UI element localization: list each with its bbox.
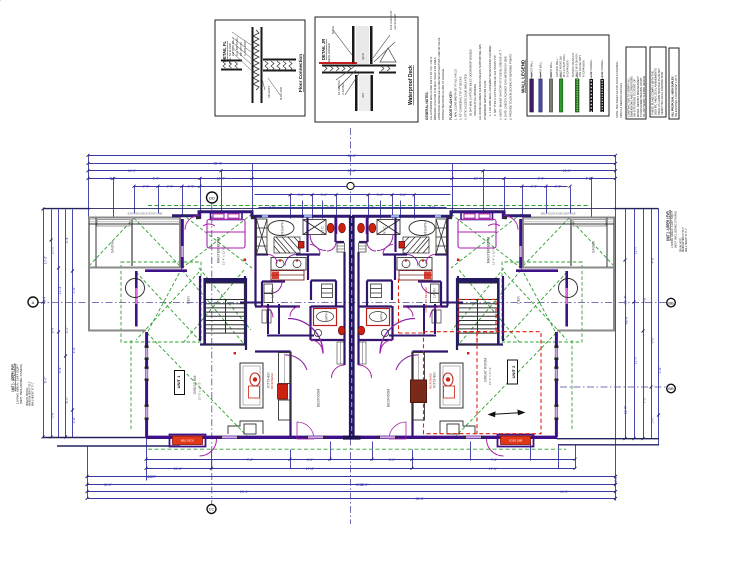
svg-text:MICROWAVE: MICROWAVE: [270, 373, 274, 389]
svg-text:OTHERWISE NOTED ON PLAN:: OTHERWISE NOTED ON PLAN:: [483, 80, 487, 120]
svg-text:SAUNA: SAUNA: [592, 240, 596, 253]
svg-text:2. 5/8" TYPE X GYP EA SIDE OF: 2. 5/8" TYPE X GYP EA SIDE OF 2x4 STUDS …: [493, 55, 497, 116]
svg-text:11'-6": 11'-6": [624, 405, 628, 414]
svg-text:SAUNA: SAUNA: [111, 240, 115, 253]
svg-text:6'-6": 6'-6": [153, 177, 161, 181]
svg-text:5'-0": 5'-0": [651, 416, 655, 424]
svg-text:4'-0": 4'-0": [368, 206, 376, 210]
svg-text:2'-6": 2'-6": [143, 184, 151, 188]
svg-text:48'-4": 48'-4": [625, 315, 629, 324]
svg-text:GREAT RM: GREAT RM: [193, 376, 197, 395]
svg-text:1 HR FIREWALL: 1 HR FIREWALL: [590, 58, 593, 77]
svg-text:88'-8": 88'-8": [348, 154, 357, 158]
svg-text:5/4 DECKING: 5/4 DECKING: [338, 80, 341, 95]
svg-text:MASTER BDRM: MASTER BDRM: [487, 237, 491, 264]
svg-text:LAG SCREWS: LAG SCREWS: [394, 14, 397, 30]
svg-text:2'-8": 2'-8": [658, 366, 662, 374]
svg-text:5'-4": 5'-4": [65, 236, 69, 244]
svg-text:FLOOR JOIST: FLOOR JOIST: [244, 40, 247, 56]
svg-text:3'-6": 3'-6": [298, 193, 306, 197]
svg-text:FLOOR PLAN KEY:: FLOOR PLAN KEY:: [449, 91, 453, 120]
svg-text:CC: CC: [209, 507, 215, 512]
svg-text:2. 42" GUARDRAIL TYP. AT DECKS: 2. 42" GUARDRAIL TYP. AT DECKS: [459, 76, 463, 120]
svg-text:3'-6": 3'-6": [400, 193, 408, 197]
svg-text:DECK LEDGER: DECK LEDGER: [327, 43, 331, 62]
svg-text:PROTECTED DOOR CLOSE AT GARAGE: PROTECTED DOOR CLOSE AT GARAGE: [441, 69, 445, 120]
svg-text:WINDOW HDR AT 80.5": WINDOW HDR AT 80.5": [29, 381, 32, 406]
svg-text:ALL DOOR HEADERS 4x8 DF#2 UNLE: ALL DOOR HEADERS 4x8 DF#2 UNLESS SUPPORT…: [478, 44, 482, 120]
svg-text:4'-6": 4'-6": [651, 256, 655, 264]
svg-text:1. MIN. CLEAR WIDTH 36" AT ALL: 1. MIN. CLEAR WIDTH 36" AT ALL HALLS: [454, 69, 458, 120]
svg-text:WINDOW HDR AT 80.5": WINDOW HDR AT 80.5": [682, 227, 685, 252]
svg-text:11'-0": 11'-0": [634, 355, 638, 364]
svg-text:5'-0": 5'-0": [307, 458, 315, 462]
svg-text:GREAT ROOM: GREAT ROOM: [484, 358, 488, 382]
svg-text:8'-6": 8'-6": [538, 177, 546, 181]
svg-text:88'-8": 88'-8": [416, 497, 425, 501]
svg-text:SUBFLOOR: SUBFLOOR: [280, 87, 283, 100]
svg-text:5'-0": 5'-0": [389, 458, 397, 462]
svg-text:MASTER BDRM: MASTER BDRM: [217, 237, 221, 264]
svg-text:BB: BB: [668, 300, 674, 305]
svg-text:5'-6": 5'-6": [377, 193, 385, 197]
svg-text:LAUN: LAUN: [271, 288, 275, 298]
svg-text:13'-4" x 12'-8": 13'-4" x 12'-8": [222, 247, 226, 265]
svg-text:30 DAY MIN. CAPTURE INLET, DOO: 30 DAY MIN. CAPTURE INLET, DOOR DROP DOU…: [469, 49, 473, 116]
svg-text:21'-4": 21'-4": [624, 295, 628, 304]
svg-text:KITCHEN: KITCHEN: [433, 372, 437, 388]
svg-text:MICROWAVE: MICROWAVE: [429, 373, 433, 389]
svg-text:2x4 INT WALL: 2x4 INT WALL: [540, 61, 543, 77]
svg-text:10'-0": 10'-0": [560, 490, 569, 494]
svg-text:ALL EXTERIOR WALLS ARE 2x6 AT: ALL EXTERIOR WALLS ARE 2x6 AT 16" O.C. U…: [429, 56, 433, 120]
svg-text:BB: BB: [668, 386, 674, 391]
svg-text:16'-0" x 17'-2": 16'-0" x 17'-2": [488, 367, 492, 385]
svg-text:FLASHING: FLASHING: [342, 83, 345, 95]
svg-text:2x6 STUD WALL: 2x6 STUD WALL: [232, 37, 235, 56]
svg-text:SPACER AT EA OPENING: SPACER AT EA OPENING: [473, 84, 477, 116]
svg-text:9'-0": 9'-0": [44, 376, 48, 384]
svg-text:14'-2": 14'-2": [614, 475, 618, 484]
svg-text:ALL PROPOSAL: NEW DUPLEX: ALL PROPOSAL: NEW DUPLEX: [671, 76, 675, 117]
svg-text:2'-6": 2'-6": [531, 184, 539, 188]
svg-text:2x6 EXT WALL: 2x6 EXT WALL: [531, 60, 534, 77]
svg-text:12'-2": 12'-2": [148, 475, 157, 479]
svg-text:2x6 INT WALL: 2x6 INT WALL: [550, 61, 553, 77]
svg-text:R-21 BATT INSUL: R-21 BATT INSUL: [236, 36, 239, 56]
svg-text:2'-6": 2'-6": [188, 184, 196, 188]
svg-text:16'-0": 16'-0": [563, 169, 572, 173]
svg-text:DETAIL JR: DETAIL JR: [321, 39, 326, 60]
svg-text:VERIFY W/ LOCAL JURISDICTION: VERIFY W/ LOCAL JURISDICTION: [660, 72, 664, 115]
svg-text:UNLESS NOTED:: UNLESS NOTED:: [27, 387, 29, 406]
svg-text:WALL HEIGHT AT 8'-1": WALL HEIGHT AT 8'-1": [31, 382, 34, 406]
svg-text:SIDING: SIDING: [332, 26, 335, 34]
svg-text:2 HR FIREWALL: 2 HR FIREWALL: [601, 58, 604, 77]
svg-text:WALL HEIGHT AT 8'-1": WALL HEIGHT AT 8'-1": [685, 228, 688, 252]
svg-text:IN EXPANSION: IN EXPANSION: [567, 60, 570, 77]
svg-text:6'-0": 6'-0": [651, 336, 655, 344]
svg-text:4'-0": 4'-0": [327, 206, 335, 210]
svg-text:ON EXISTING FOOTPRINT LOT 4: ON EXISTING FOOTPRINT LOT 4: [674, 75, 678, 117]
svg-text:5'-6": 5'-6": [51, 411, 55, 419]
svg-text:3'-0": 3'-0": [65, 326, 69, 334]
svg-text:BEDROOM: BEDROOM: [317, 389, 321, 408]
svg-text:7'-6": 7'-6": [491, 458, 499, 462]
svg-text:3. ATTIC ACCESS 22x30 INSULATE: 3. ATTIC ACCESS 22x30 INSULATED: [464, 74, 468, 120]
svg-text:17'-6": 17'-6": [489, 467, 498, 471]
svg-text:W.I.C.: W.I.C.: [383, 225, 387, 235]
svg-text:(NOT INCLUDING STAIRS): (NOT INCLUDING STAIRS): [674, 211, 678, 248]
svg-text:12'-0": 12'-0": [217, 177, 226, 181]
svg-text:EXISTING DECK ROOF LINE: EXISTING DECK ROOF LINE: [128, 212, 163, 216]
svg-text:DEN: DEN: [187, 296, 191, 304]
svg-text:DD: DD: [209, 195, 215, 200]
svg-text:34'-0": 34'-0": [128, 169, 137, 173]
svg-text:36'-2": 36'-2": [360, 483, 369, 487]
svg-text:WINDOW U-FACTOR 0.30 MAX, SHGC: WINDOW U-FACTOR 0.30 MAX, SHGC 0.40 LINE…: [433, 57, 437, 120]
svg-text:BATH: BATH: [380, 312, 384, 322]
svg-text:9'-8": 9'-8": [643, 296, 647, 304]
svg-text:W.I.C.: W.I.C.: [339, 326, 343, 334]
svg-text:VAULTED: VAULTED: [475, 330, 479, 344]
svg-text:4. GATE CHECKS AGAINST GAS MET: 4. GATE CHECKS AGAINST GAS METERS EA SID…: [504, 56, 508, 120]
svg-text:RIM JOIST: RIM JOIST: [268, 86, 271, 98]
svg-text:BEDROOM: BEDROOM: [387, 389, 391, 408]
svg-text:OF ANY WORK SHOWN HEREIN: OF ANY WORK SHOWN HEREIN: [642, 76, 646, 117]
svg-text:OPEN TO BELOW: OPEN TO BELOW: [424, 287, 428, 312]
svg-text:7'-6": 7'-6": [247, 458, 255, 462]
svg-text:20'-4": 20'-4": [240, 490, 249, 494]
svg-text:KITCHEN: KITCHEN: [267, 372, 271, 388]
svg-text:5. PROVIDE SOLID BLOCKING AT B: 5. PROVIDE SOLID BLOCKING AT BEARING POI…: [509, 54, 513, 120]
svg-text:9'-4": 9'-4": [58, 366, 62, 374]
svg-text:UNIT 2 - UPPER LEVEL: UNIT 2 - UPPER LEVEL: [665, 210, 670, 241]
svg-text:3. UNITS "MAXIM" SHUTOFF AT ST: 3. UNITS "MAXIM" SHUTOFF AT STUB IN. GRE…: [499, 50, 503, 120]
svg-text:BBQ DECK: BBQ DECK: [181, 439, 195, 443]
svg-text:6'-0": 6'-0": [65, 396, 69, 404]
svg-text:24'-0": 24'-0": [174, 467, 183, 471]
svg-text:4x10: 4x10: [361, 53, 365, 60]
svg-text:48'-4": 48'-4": [43, 295, 47, 304]
svg-text:IN EXPANSION: IN EXPANSION: [583, 60, 586, 77]
svg-text:UNIT 1 - UPPER LEVEL: UNIT 1 - UPPER LEVEL: [10, 363, 15, 391]
svg-text:3'-6": 3'-6": [72, 416, 76, 424]
svg-text:UNIT 1: UNIT 1: [176, 375, 181, 388]
svg-text:GENERAL NOTES:: GENERAL NOTES:: [425, 92, 429, 120]
svg-text:LAUN: LAUN: [433, 288, 437, 298]
svg-text:LIVING AREA: 1347 SQFT: LIVING AREA: 1347 SQFT: [670, 211, 674, 248]
svg-text:1. 1 HR FIRE WALL ASSEMBLY W/: 1. 1 HR FIRE WALL ASSEMBLY W/ RESILIENT …: [488, 45, 492, 116]
svg-text:2'-6": 2'-6": [555, 184, 563, 188]
svg-text:5'-0": 5'-0": [110, 177, 118, 181]
svg-text:M.BATH: M.BATH: [281, 221, 285, 235]
svg-text:12'-0": 12'-0": [474, 177, 483, 181]
svg-text:APPROVED DRAINAGE ALONG W/ NO: APPROVED DRAINAGE ALONG W/ NO SHUTOFF LI…: [437, 37, 441, 120]
svg-text:2'-6": 2'-6": [167, 184, 175, 188]
svg-text:36'-2": 36'-2": [104, 483, 113, 487]
svg-text:12'-4": 12'-4": [58, 285, 62, 294]
svg-text:5/8" GYP BD: 5/8" GYP BD: [240, 42, 243, 56]
svg-text:20'-8": 20'-8": [348, 169, 357, 173]
svg-text:2'-0": 2'-0": [429, 206, 437, 210]
svg-text:Floor Connection: Floor Connection: [298, 54, 303, 92]
svg-text:5'-6": 5'-6": [321, 193, 329, 197]
svg-text:6'-6": 6'-6": [586, 177, 594, 181]
svg-text:10'-2": 10'-2": [44, 255, 48, 264]
svg-text:88'-8": 88'-8": [214, 162, 223, 166]
svg-text:DETAIL FL: DETAIL FL: [222, 41, 227, 62]
svg-text:JST: JST: [361, 92, 365, 98]
svg-text:7'-0": 7'-0": [643, 396, 647, 404]
svg-text:UNIT 2: UNIT 2: [511, 365, 516, 378]
svg-text:M.BATH: M.BATH: [424, 221, 428, 235]
svg-text:(NOT INCLUDING STAIRS): (NOT INCLUDING STAIRS): [19, 364, 23, 404]
svg-text:DRAIN NOTE:: DRAIN NOTE:: [680, 237, 683, 252]
svg-text:12'-0": 12'-0": [634, 245, 638, 254]
svg-text:16'-0" x 17'-2": 16'-0" x 17'-2": [198, 382, 202, 400]
svg-text:13'-4" x 12'-8": 13'-4" x 12'-8": [492, 247, 496, 265]
svg-text:2x10 LEDGER W/: 2x10 LEDGER W/: [390, 10, 393, 30]
svg-text:Waterproof Deck: Waterproof Deck: [408, 65, 414, 105]
svg-text:A: A: [32, 300, 35, 305]
svg-text:BATH: BATH: [325, 312, 329, 322]
svg-text:17'-6": 17'-6": [306, 467, 315, 471]
svg-text:W.I.C.: W.I.C.: [321, 225, 325, 235]
svg-text:2'-6": 2'-6": [72, 286, 76, 294]
svg-text:10'-0": 10'-0": [51, 245, 55, 254]
svg-text:4'-6": 4'-6": [72, 346, 76, 354]
svg-text:SPECS & BEARING DETAILS: SPECS & BEARING DETAILS: [619, 83, 623, 118]
svg-text:LIVING AREA: 1347 SQFT: LIVING AREA: 1347 SQFT: [15, 364, 19, 404]
svg-text:2'-0": 2'-0": [269, 206, 277, 210]
svg-text:8'-6": 8'-6": [51, 326, 55, 334]
svg-text:NOTE: SEE SHEET A4 FOR ROOF &: NOTE: SEE SHEET A4 FOR ROOF & FRAMING: [615, 62, 619, 118]
svg-text:DEN: DEN: [517, 296, 521, 304]
svg-text:WALL LEGEND: WALL LEGEND: [521, 59, 526, 93]
